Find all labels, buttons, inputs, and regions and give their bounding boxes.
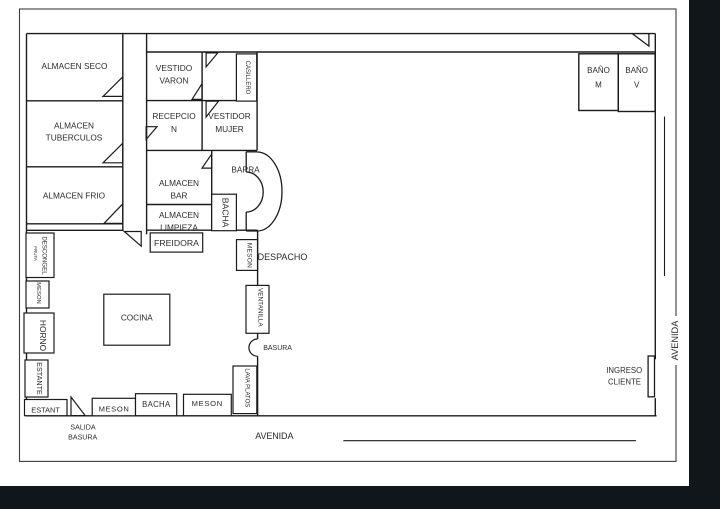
- svg-text:ESTANTE: ESTANTE: [35, 362, 44, 395]
- svg-text:HORNO: HORNO: [38, 320, 48, 352]
- svg-text:ALMACEN SECO: ALMACEN SECO: [42, 61, 108, 71]
- svg-text:ALMACEN: ALMACEN: [159, 178, 199, 188]
- svg-text:LIMPIEZA: LIMPIEZA: [160, 222, 198, 232]
- svg-text:N: N: [171, 124, 177, 134]
- svg-text:TUBERCULOS: TUBERCULOS: [46, 132, 103, 142]
- svg-text:V: V: [634, 81, 640, 90]
- svg-text:RECEPCIO: RECEPCIO: [152, 111, 196, 121]
- svg-text:BASURA: BASURA: [263, 345, 292, 352]
- svg-text:DESCONGEL: DESCONGEL: [41, 236, 48, 275]
- svg-text:BASURA: BASURA: [68, 434, 97, 442]
- svg-text:VARON: VARON: [160, 76, 189, 86]
- svg-text:COCINA: COCINA: [121, 314, 153, 323]
- svg-text:VESTIDOR: VESTIDOR: [208, 111, 250, 121]
- svg-text:ESTANT: ESTANT: [31, 406, 60, 415]
- svg-text:ALMACEN: ALMACEN: [54, 121, 94, 131]
- svg-text:DESPACHO: DESPACHO: [258, 252, 308, 262]
- svg-text:BARRA: BARRA: [231, 166, 260, 175]
- svg-text:MUJER: MUJER: [215, 124, 244, 134]
- svg-text:M: M: [595, 81, 602, 90]
- svg-text:BACHA: BACHA: [221, 198, 231, 228]
- svg-text:ALMACEN FRIO: ALMACEN FRIO: [43, 190, 106, 200]
- svg-text:FREIDORA: FREIDORA: [154, 238, 199, 248]
- svg-text:MESON: MESON: [35, 282, 41, 304]
- svg-text:ALMACEN: ALMACEN: [159, 210, 199, 220]
- svg-text:BACHA: BACHA: [142, 400, 171, 409]
- svg-text:AVENIDA: AVENIDA: [255, 431, 293, 441]
- svg-text:AVENIDA: AVENIDA: [670, 320, 680, 361]
- svg-text:BAR: BAR: [170, 191, 187, 201]
- svg-text:CLIENTE: CLIENTE: [608, 377, 641, 386]
- svg-text:MESON: MESON: [192, 399, 223, 408]
- svg-text:MESON: MESON: [99, 405, 130, 414]
- svg-text:BAÑO: BAÑO: [587, 66, 610, 75]
- svg-text:CASILLERO: CASILLERO: [244, 61, 250, 95]
- svg-text:FRUTA: FRUTA: [33, 246, 38, 261]
- svg-text:MESON: MESON: [246, 243, 253, 268]
- svg-text:VENTANILLA: VENTANILLA: [257, 288, 264, 327]
- svg-text:INGRESO: INGRESO: [606, 366, 642, 375]
- svg-text:SALIDA: SALIDA: [70, 423, 96, 431]
- svg-text:BAÑO: BAÑO: [625, 66, 648, 75]
- svg-text:LAVA PLATOS: LAVA PLATOS: [244, 368, 250, 407]
- svg-text:VESTIDO: VESTIDO: [156, 63, 193, 73]
